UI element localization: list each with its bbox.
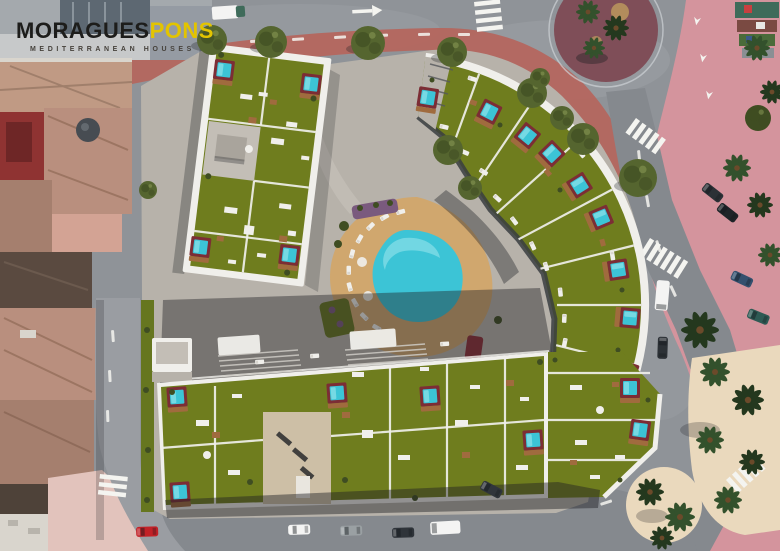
zebra-crossing xyxy=(98,474,128,497)
brand-accent: PONS xyxy=(150,18,214,43)
olive-tree xyxy=(437,37,467,67)
parked-car xyxy=(392,527,414,538)
block-a-roof-terraces xyxy=(172,42,331,288)
developer-logo: MORAGUESPONS MEDITERRANEAN HOUSES xyxy=(16,20,214,53)
olive-tree xyxy=(433,135,463,165)
olive-tree xyxy=(458,176,482,200)
parked-car xyxy=(288,524,310,535)
plunge-pool xyxy=(189,236,212,263)
olive-tree xyxy=(255,26,287,58)
white-van xyxy=(654,280,670,311)
plunge-pool xyxy=(620,378,640,403)
tree xyxy=(530,68,550,88)
olive-tree xyxy=(550,106,574,130)
brand-name: MORAGUESPONS xyxy=(16,20,214,42)
parked-car xyxy=(657,337,668,359)
olive-tree xyxy=(619,159,657,197)
plunge-pool xyxy=(628,419,651,447)
tree xyxy=(139,181,157,199)
brand-tagline: MEDITERRANEAN HOUSES xyxy=(30,46,214,53)
white-van xyxy=(430,520,461,535)
parasol xyxy=(357,257,367,267)
plunge-pool xyxy=(299,73,322,100)
olive-tree xyxy=(567,123,599,155)
plunge-pool xyxy=(278,244,301,271)
parked-car xyxy=(340,525,362,536)
aerial-render: MORAGUESPONS MEDITERRANEAN HOUSES xyxy=(0,0,780,551)
aerial-scene xyxy=(0,0,780,551)
olive-tree xyxy=(351,26,385,60)
parked-car xyxy=(136,526,158,537)
tree xyxy=(745,105,771,131)
northwest-terrace xyxy=(152,338,192,382)
brand-primary: MORAGUES xyxy=(16,18,150,43)
plunge-pool xyxy=(212,59,235,86)
